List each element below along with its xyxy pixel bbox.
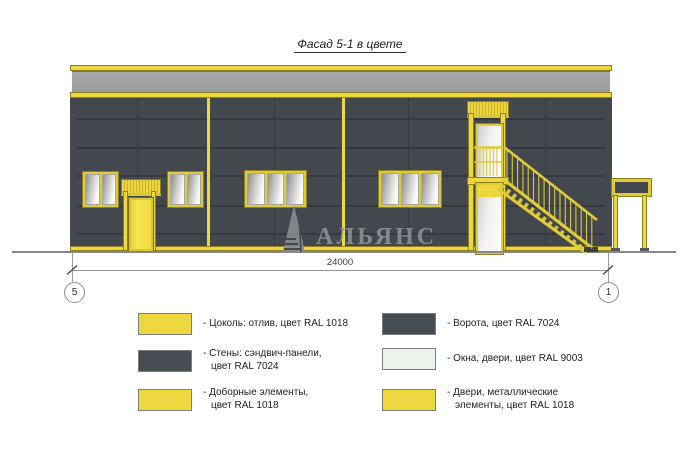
window-pane: [421, 173, 439, 205]
panel-joint: [77, 205, 605, 207]
legend-item: - Двери, металлические элементы, цвет RA…: [382, 387, 574, 412]
drawing-title-text: Фасад 5-1 в цвете: [294, 37, 405, 53]
watermark-text: АЛЬЯНС: [316, 225, 437, 249]
extension-line: [72, 253, 73, 282]
panel-joint: [77, 175, 605, 177]
upper-level-door: [476, 124, 503, 181]
yellow-door-leaf: [128, 197, 154, 252]
legend-label: цвет RAL 7024: [211, 361, 322, 374]
facade-divider-trim: [207, 98, 210, 246]
lower-level-door: [476, 183, 503, 254]
window-pane: [187, 174, 202, 205]
window-pane: [247, 173, 265, 205]
window: [245, 171, 306, 207]
legend-item: - Стены: сэндвич-панели, цвет RAL 7024: [138, 348, 322, 373]
signboard-post: [643, 196, 646, 251]
panel-joint: [77, 118, 605, 120]
legend-label: - Окна, двери, цвет RAL 9003: [447, 353, 583, 366]
legend-swatch-ral9003: [382, 348, 436, 370]
legend-label: цвет RAL 1018: [211, 400, 308, 413]
axis-marker-5: 5: [64, 282, 85, 303]
axis-marker-1: 1: [598, 282, 619, 303]
window-pane: [401, 173, 419, 205]
door-transom-panel: [478, 185, 501, 197]
window-pane: [267, 173, 285, 205]
facade-drawing-sheet: Фасад 5-1 в цвете: [0, 0, 700, 474]
window-pane: [170, 174, 185, 205]
signboard: [612, 179, 651, 196]
legend-label: элементы, цвет RAL 1018: [455, 400, 574, 413]
window-pane: [102, 174, 117, 205]
legend-swatch-ral7024: [138, 350, 192, 372]
legend-label: - Цоколь: отлив, цвет RAL 1018: [203, 318, 348, 331]
panel-joint: [545, 98, 546, 246]
window: [379, 171, 441, 207]
dimension-label: 24000: [310, 257, 370, 268]
dimension-line: [72, 270, 608, 271]
legend-item: - Доборные элементы, цвет RAL 1018: [138, 387, 308, 412]
legend-swatch-ral7024: [382, 313, 436, 335]
panel-joint: [77, 147, 605, 149]
legend-label: - Стены: сэндвич-панели,: [203, 348, 322, 361]
legend-swatch-ral1018: [138, 313, 192, 335]
legend-label: - Двери, металлические: [447, 387, 574, 400]
parapet-band: [72, 71, 610, 94]
window: [83, 172, 118, 207]
window: [168, 172, 203, 207]
drawing-title: Фасад 5-1 в цвете: [0, 35, 700, 53]
window-pane: [381, 173, 399, 205]
window-pane: [286, 173, 304, 205]
legend-item: - Цоколь: отлив, цвет RAL 1018: [138, 313, 348, 335]
legend-swatch-ral1018: [382, 389, 436, 411]
signboard-post: [614, 196, 617, 251]
window-pane: [85, 174, 100, 205]
door-frame-post: [124, 192, 127, 250]
extension-line: [608, 253, 609, 282]
legend-label: - Доборные элементы,: [203, 387, 308, 400]
legend-item: - Ворота, цвет RAL 7024: [382, 313, 559, 335]
legend-item: - Окна, двери, цвет RAL 9003: [382, 348, 583, 370]
legend-swatch-ral1018: [138, 389, 192, 411]
legend-label: - Ворота, цвет RAL 7024: [447, 318, 559, 331]
ground-line: [12, 251, 676, 253]
door-canopy: [121, 179, 161, 196]
